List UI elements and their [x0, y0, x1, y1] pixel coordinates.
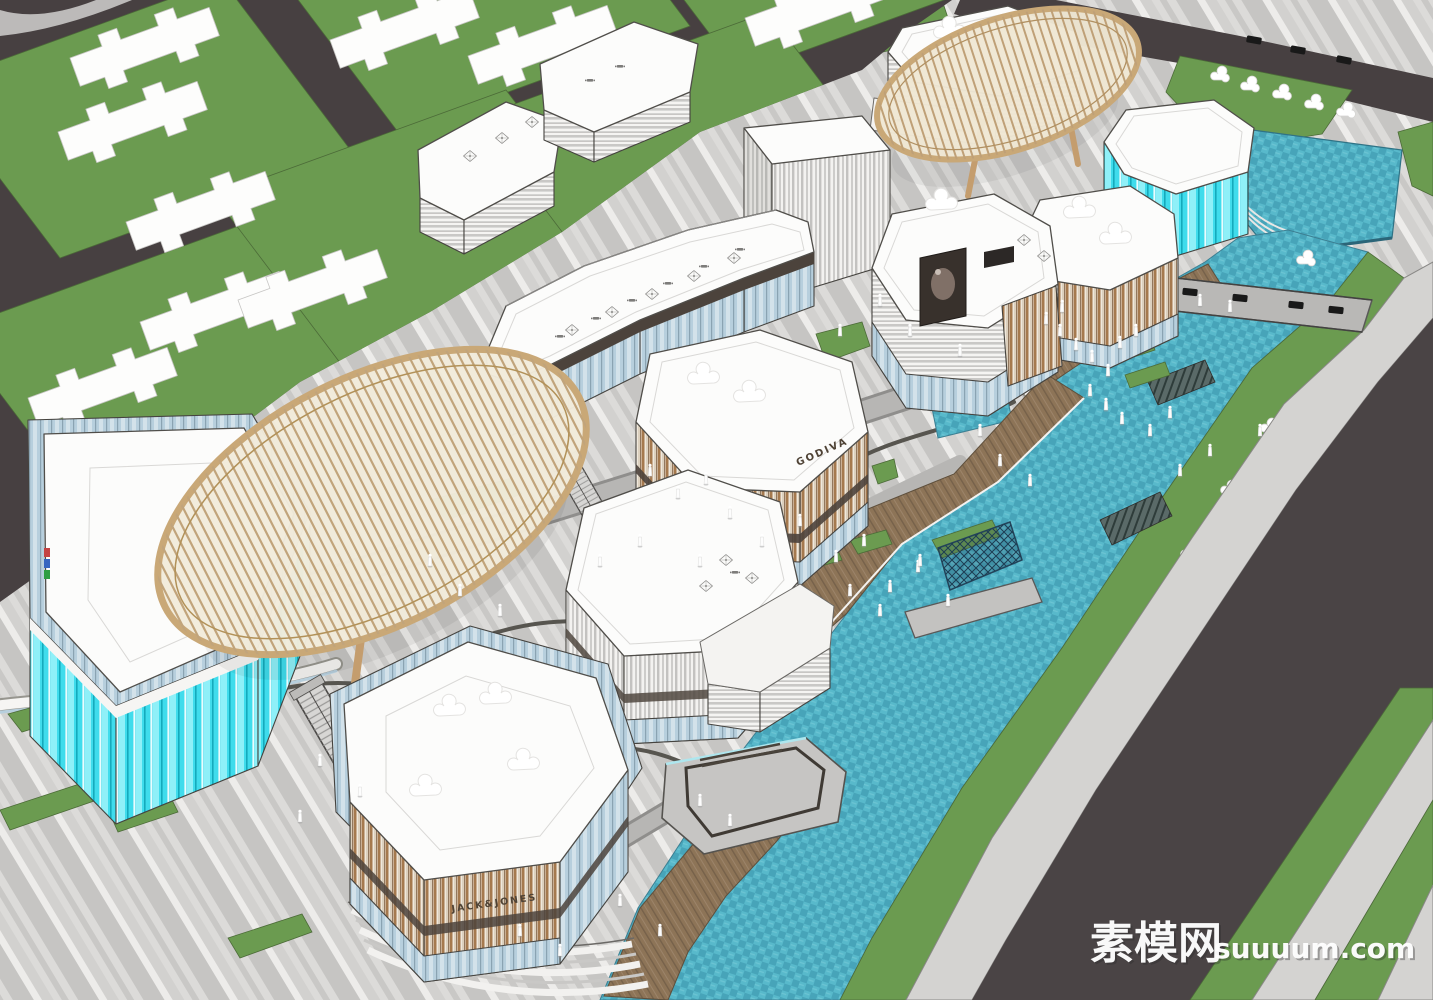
- facade-logo-sign: [44, 548, 50, 579]
- watermark-cjk: 素模网: [1090, 918, 1222, 969]
- building-billboard: [872, 188, 1062, 416]
- watermark-latin: suuuum.com: [1214, 932, 1415, 965]
- billboard-poster: [920, 248, 966, 326]
- architectural-render: GODIVA JACK&JON: [0, 0, 1433, 1000]
